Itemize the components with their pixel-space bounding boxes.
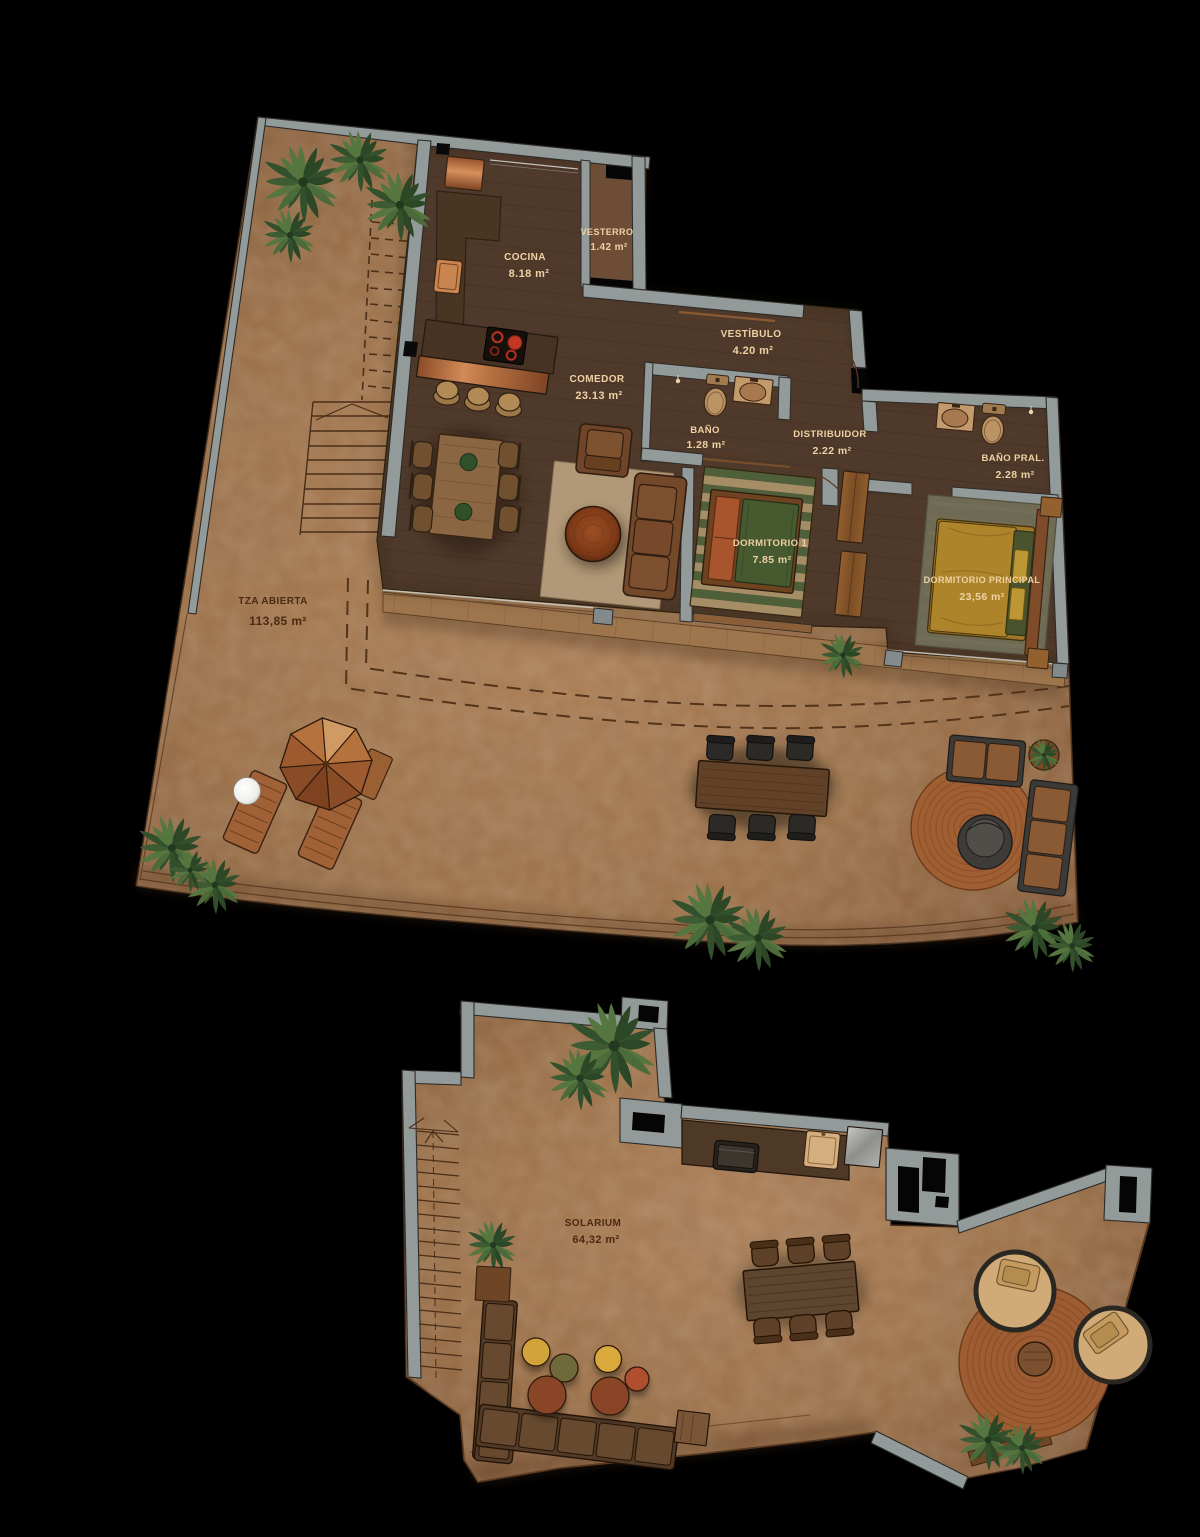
svg-text:VESTÍBULO: VESTÍBULO <box>721 327 782 340</box>
svg-text:VESTERRO: VESTERRO <box>581 227 634 237</box>
svg-text:DORMITORIO PRINCIPAL: DORMITORIO PRINCIPAL <box>924 575 1041 585</box>
svg-text:64,32 m²: 64,32 m² <box>572 1234 619 1246</box>
svg-text:1.42 m²: 1.42 m² <box>590 242 628 253</box>
svg-text:2.22 m²: 2.22 m² <box>813 445 852 457</box>
svg-text:SOLARIUM: SOLARIUM <box>565 1218 622 1229</box>
svg-text:COMEDOR: COMEDOR <box>569 374 624 385</box>
svg-text:4.20 m²: 4.20 m² <box>733 345 774 357</box>
svg-text:DORMITORIO 1: DORMITORIO 1 <box>733 538 808 549</box>
svg-text:TZA ABIERTA: TZA ABIERTA <box>238 596 308 607</box>
svg-text:23,56 m²: 23,56 m² <box>959 591 1004 603</box>
svg-text:7.85 m²: 7.85 m² <box>753 554 792 566</box>
svg-text:BAÑO: BAÑO <box>690 425 720 436</box>
svg-text:BAÑO PRAL.: BAÑO PRAL. <box>981 453 1044 464</box>
svg-text:1.28 m²: 1.28 m² <box>687 439 726 451</box>
svg-text:23.13 m²: 23.13 m² <box>575 390 622 402</box>
svg-text:2.28 m²: 2.28 m² <box>996 469 1035 481</box>
svg-text:DISTRIBUIDOR: DISTRIBUIDOR <box>793 429 866 440</box>
svg-text:113,85 m²: 113,85 m² <box>249 614 307 628</box>
svg-text:COCINA: COCINA <box>504 252 546 263</box>
svg-text:8.18 m²: 8.18 m² <box>509 268 550 280</box>
